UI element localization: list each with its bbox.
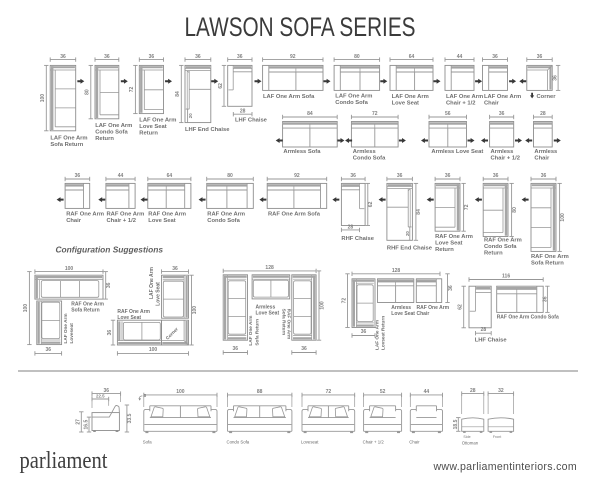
svg-text:RAF One Arm: RAF One Arm [66,212,104,218]
svg-text:Sofa Return: Sofa Return [50,142,83,148]
svg-text:LAF One Arm: LAF One Arm [50,136,87,142]
svg-text:Return: Return [484,250,503,256]
svg-text:Condo Sofa: Condo Sofa [353,155,386,161]
svg-text:36: 36 [107,330,113,336]
svg-text:Love Seat: Love Seat [392,100,419,106]
svg-text:RAF One Arm: RAF One Arm [117,309,150,315]
svg-text:80: 80 [227,173,233,179]
svg-text:36: 36 [149,54,155,60]
svg-text:Return: Return [95,136,114,142]
svg-text:Sofa Return: Sofa Return [531,261,564,267]
svg-text:LAF One Arm: LAF One Arm [375,320,380,350]
svg-text:28: 28 [348,225,354,231]
svg-text:RAF One Arm: RAF One Arm [435,234,473,240]
svg-text:Love Seat: Love Seat [391,311,415,317]
svg-text:RAF One Arm Sofa: RAF One Arm Sofa [268,212,321,218]
svg-text:36: 36 [448,285,454,291]
svg-text:RHF End Chaise: RHF End Chaise [387,245,433,251]
svg-text:Armless Love Seat: Armless Love Seat [431,149,483,155]
svg-text:72: 72 [464,204,470,210]
svg-text:Love Seat: Love Seat [117,315,141,321]
svg-text:Armless: Armless [256,305,276,311]
svg-text:Armless Sofa: Armless Sofa [283,149,321,155]
svg-text:36: 36 [195,54,201,60]
svg-text:Chair + 1/2: Chair + 1/2 [446,100,475,106]
svg-text:28: 28 [240,109,246,115]
svg-text:Chair + 1/2: Chair + 1/2 [107,218,136,224]
svg-text:64: 64 [167,173,173,179]
svg-text:36: 36 [237,54,243,60]
svg-text:36: 36 [445,173,451,179]
svg-text:36: 36 [60,54,66,60]
svg-text:36: 36 [542,296,548,302]
svg-text:72: 72 [129,87,135,93]
svg-text:36: 36 [552,75,558,81]
svg-text:Love Seat: Love Seat [155,282,161,306]
svg-text:56: 56 [445,111,451,117]
svg-text:LAF One Arm: LAF One Arm [95,123,132,129]
svg-text:RAF One Arm: RAF One Arm [71,301,104,307]
svg-text:Loveseat: Loveseat [301,439,319,444]
svg-text:Lovseat Return: Lovseat Return [381,316,386,350]
svg-text:44: 44 [457,54,463,60]
svg-text:Return: Return [435,247,454,253]
svg-text:Ottoman: Ottoman [462,441,479,446]
svg-text:27: 27 [76,419,82,425]
svg-text:36: 36 [172,266,178,272]
svg-text:Love Seat: Love Seat [435,240,462,246]
svg-text:28: 28 [470,388,476,394]
svg-text:100: 100 [560,213,566,222]
svg-text:RHF Chaise: RHF Chaise [341,236,374,242]
svg-text:Sofa: Sofa [143,439,152,444]
svg-text:Condo Sofa: Condo Sofa [335,100,368,106]
svg-text:Armless: Armless [353,149,376,155]
svg-text:Chair: Chair [534,155,550,161]
svg-text:36: 36 [350,173,356,179]
svg-text:RAF One Arm: RAF One Arm [287,309,292,340]
svg-text:100: 100 [176,389,185,395]
svg-text:36: 36 [301,346,307,352]
svg-text:80: 80 [512,207,518,213]
svg-text:www.parliamentinteriors.com: www.parliamentinteriors.com [432,461,577,473]
svg-text:44: 44 [424,389,430,395]
svg-text:Chair: Chair [66,218,82,224]
svg-text:36: 36 [499,111,505,117]
svg-text:Condo Sofa: Condo Sofa [227,439,250,444]
svg-text:Return: Return [139,130,158,136]
svg-text:20: 20 [405,231,410,236]
svg-text:Armless: Armless [391,305,411,311]
svg-text:36: 36 [397,173,403,179]
svg-text:LHF Chaise: LHF Chaise [235,118,268,124]
svg-text:Sofa Return: Sofa Return [71,308,99,314]
svg-text:84: 84 [175,91,181,97]
svg-text:36: 36 [493,173,499,179]
svg-text:128: 128 [392,268,401,274]
svg-text:16.5: 16.5 [84,420,90,430]
svg-text:Front: Front [493,435,501,439]
svg-text:Chair: Chair [417,311,430,317]
svg-text:RAF One Arm: RAF One Arm [531,254,569,260]
svg-text:72: 72 [341,298,347,304]
svg-text:RAF One Arm: RAF One Arm [417,305,450,311]
svg-text:36: 36 [106,282,112,288]
svg-text:Chair + 1/2: Chair + 1/2 [491,155,520,161]
svg-text:36: 36 [46,347,52,353]
svg-text:28: 28 [481,327,487,333]
svg-text:Love Seat: Love Seat [256,311,280,317]
svg-text:36: 36 [361,329,367,335]
svg-text:62: 62 [368,201,374,207]
svg-text:100: 100 [40,94,46,103]
svg-text:62: 62 [218,83,224,89]
svg-text:Armless: Armless [534,149,557,155]
svg-text:RAF One Arm: RAF One Arm [484,237,522,243]
svg-text:LAF One Arm: LAF One Arm [63,313,68,343]
svg-text:LAF One Arm: LAF One Arm [335,94,372,100]
svg-text:36: 36 [537,54,543,60]
svg-text:64: 64 [409,54,415,60]
svg-text:92: 92 [290,54,296,60]
svg-text:LAF One Arm Sofa: LAF One Arm Sofa [263,94,315,100]
svg-text:116: 116 [502,274,510,280]
svg-text:RAF One Arm: RAF One Arm [107,212,145,218]
svg-text:33.5: 33.5 [127,413,133,423]
svg-text:88: 88 [257,389,263,395]
svg-text:100: 100 [192,306,198,315]
svg-text:62: 62 [458,304,464,310]
svg-text:Condo Sofa: Condo Sofa [95,129,128,135]
svg-text:44: 44 [118,173,124,179]
svg-text:LAF One Arm: LAF One Arm [392,94,429,100]
svg-text:80: 80 [85,89,91,95]
svg-text:36: 36 [492,54,498,60]
svg-text:100: 100 [23,304,29,313]
svg-text:22.5: 22.5 [96,394,105,399]
svg-text:32: 32 [498,388,504,394]
svg-text:RAF One Arm Condo Sofa: RAF One Arm Condo Sofa [497,314,559,320]
svg-text:RAF One Arm: RAF One Arm [207,212,245,218]
svg-text:parliament: parliament [20,448,108,474]
svg-text:RAF One Arm: RAF One Arm [148,212,186,218]
svg-text:72: 72 [372,111,378,117]
svg-text:Chair: Chair [484,100,500,106]
svg-text:Love Seat: Love Seat [139,124,166,130]
svg-text:Love Seat: Love Seat [148,218,175,224]
svg-text:36: 36 [541,173,547,179]
svg-text:Sofa Return: Sofa Return [281,309,286,336]
svg-text:28: 28 [540,111,546,117]
svg-text:LHF End Chaise: LHF End Chaise [185,127,230,133]
svg-text:LAF One Arm: LAF One Arm [248,316,253,346]
svg-text:128: 128 [265,265,274,271]
svg-text:18.5: 18.5 [453,419,459,429]
svg-text:Sofa Return: Sofa Return [254,319,259,346]
svg-text:LAF One Arm: LAF One Arm [139,117,176,123]
svg-text:80: 80 [354,54,360,60]
svg-text:Armless: Armless [491,149,514,155]
svg-text:Loveseat: Loveseat [69,323,74,344]
svg-text:84: 84 [307,111,313,117]
svg-text:36: 36 [104,54,110,60]
svg-text:100: 100 [149,347,158,353]
svg-text:36: 36 [233,346,239,352]
svg-text:Chair: Chair [409,439,420,444]
svg-text:Side: Side [463,435,470,439]
svg-text:Chair + 1/2: Chair + 1/2 [363,439,385,444]
svg-text:100: 100 [65,266,74,272]
svg-text:LAF One Arm: LAF One Arm [446,94,483,100]
svg-text:52: 52 [380,389,386,395]
svg-text:Corner: Corner [537,94,557,100]
svg-text:72: 72 [326,389,332,395]
svg-text:100: 100 [319,301,325,310]
svg-text:Condo Sofa: Condo Sofa [207,218,240,224]
svg-text:92: 92 [294,173,300,179]
svg-text:36: 36 [75,173,81,179]
svg-text:LAF One Arm: LAF One Arm [484,94,521,100]
svg-text:LHF Chaise: LHF Chaise [475,337,508,343]
svg-text:Condo Sofa: Condo Sofa [484,244,517,250]
svg-text:Configuration Suggestions: Configuration Suggestions [56,245,164,255]
svg-text:LAF One Arm: LAF One Arm [149,266,155,299]
svg-text:20: 20 [188,113,193,118]
svg-text:84: 84 [416,209,422,215]
svg-text:LAWSON SOFA SERIES: LAWSON SOFA SERIES [185,12,416,42]
